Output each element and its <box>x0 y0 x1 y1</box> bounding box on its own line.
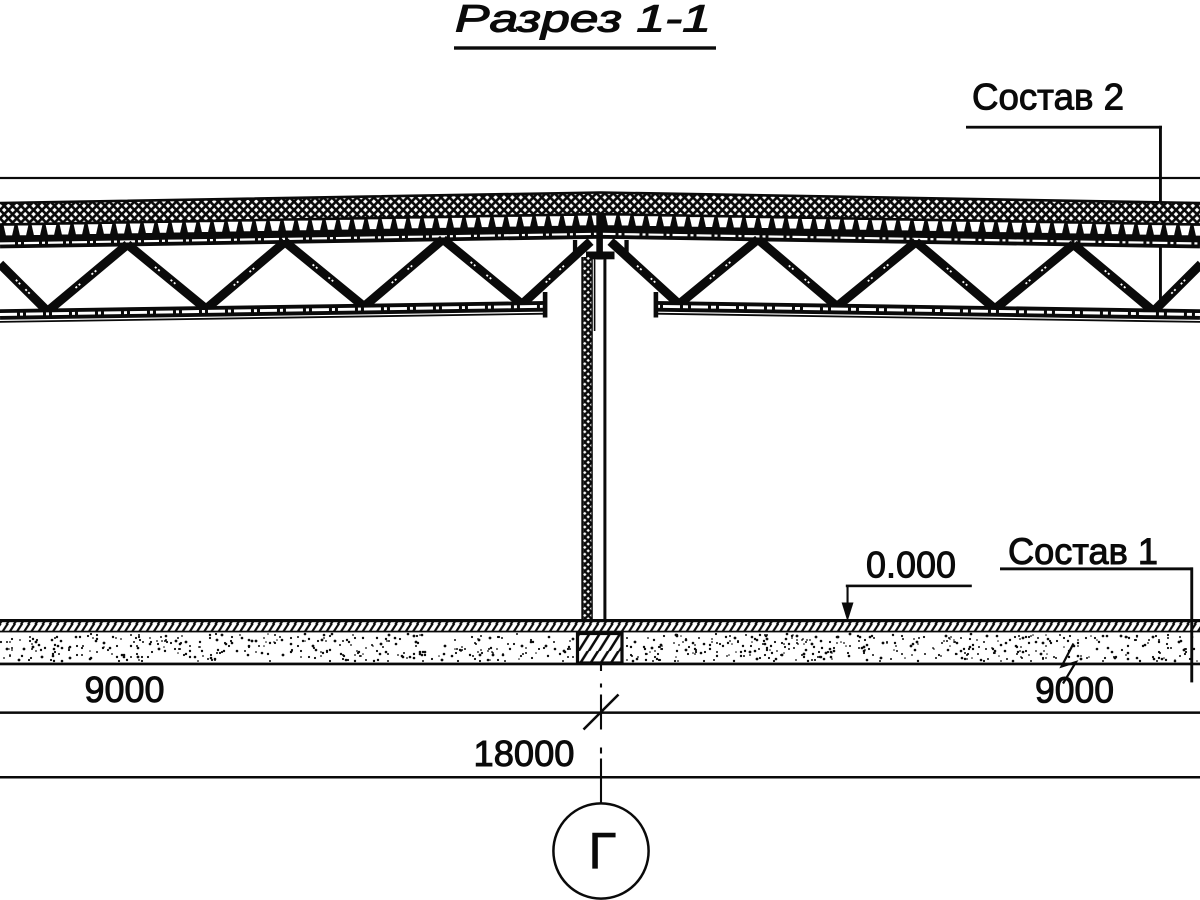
svg-text:9000: 9000 <box>85 669 165 710</box>
svg-text:9000: 9000 <box>1035 670 1114 711</box>
svg-text:Состав 2: Состав 2 <box>972 76 1124 118</box>
svg-text:Разрез 1-1: Разрез 1-1 <box>455 0 711 41</box>
svg-text:18000: 18000 <box>474 733 575 774</box>
svg-text:0.000: 0.000 <box>866 544 956 586</box>
svg-text:Г: Г <box>589 823 617 880</box>
svg-text:Состав 1: Состав 1 <box>1008 530 1158 572</box>
